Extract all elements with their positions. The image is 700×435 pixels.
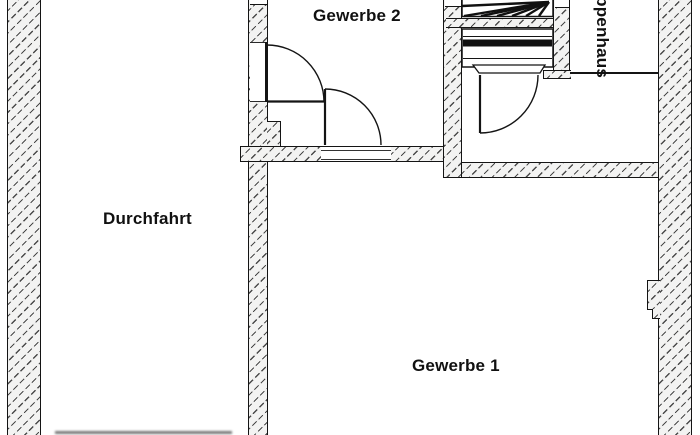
- room1-label: Gewerbe 1: [412, 356, 500, 376]
- stair-door-swing-arc: [480, 75, 538, 133]
- stairwell-label: Treppenhaus: [592, 0, 612, 78]
- stair-bottom-step: [473, 65, 545, 73]
- door-a-swing-arc: [267, 45, 324, 102]
- stair-cut-bar: [463, 40, 552, 47]
- passage-label: Durchfahrt: [103, 209, 192, 229]
- door-b-swing-arc: [325, 89, 381, 145]
- stair-flight-box: [462, 29, 553, 67]
- floor-plan-canvas: Gewerbe 2 Durchfahrt Gewerbe 1 Treppenha…: [0, 0, 700, 435]
- room2-label: Gewerbe 2: [313, 6, 401, 26]
